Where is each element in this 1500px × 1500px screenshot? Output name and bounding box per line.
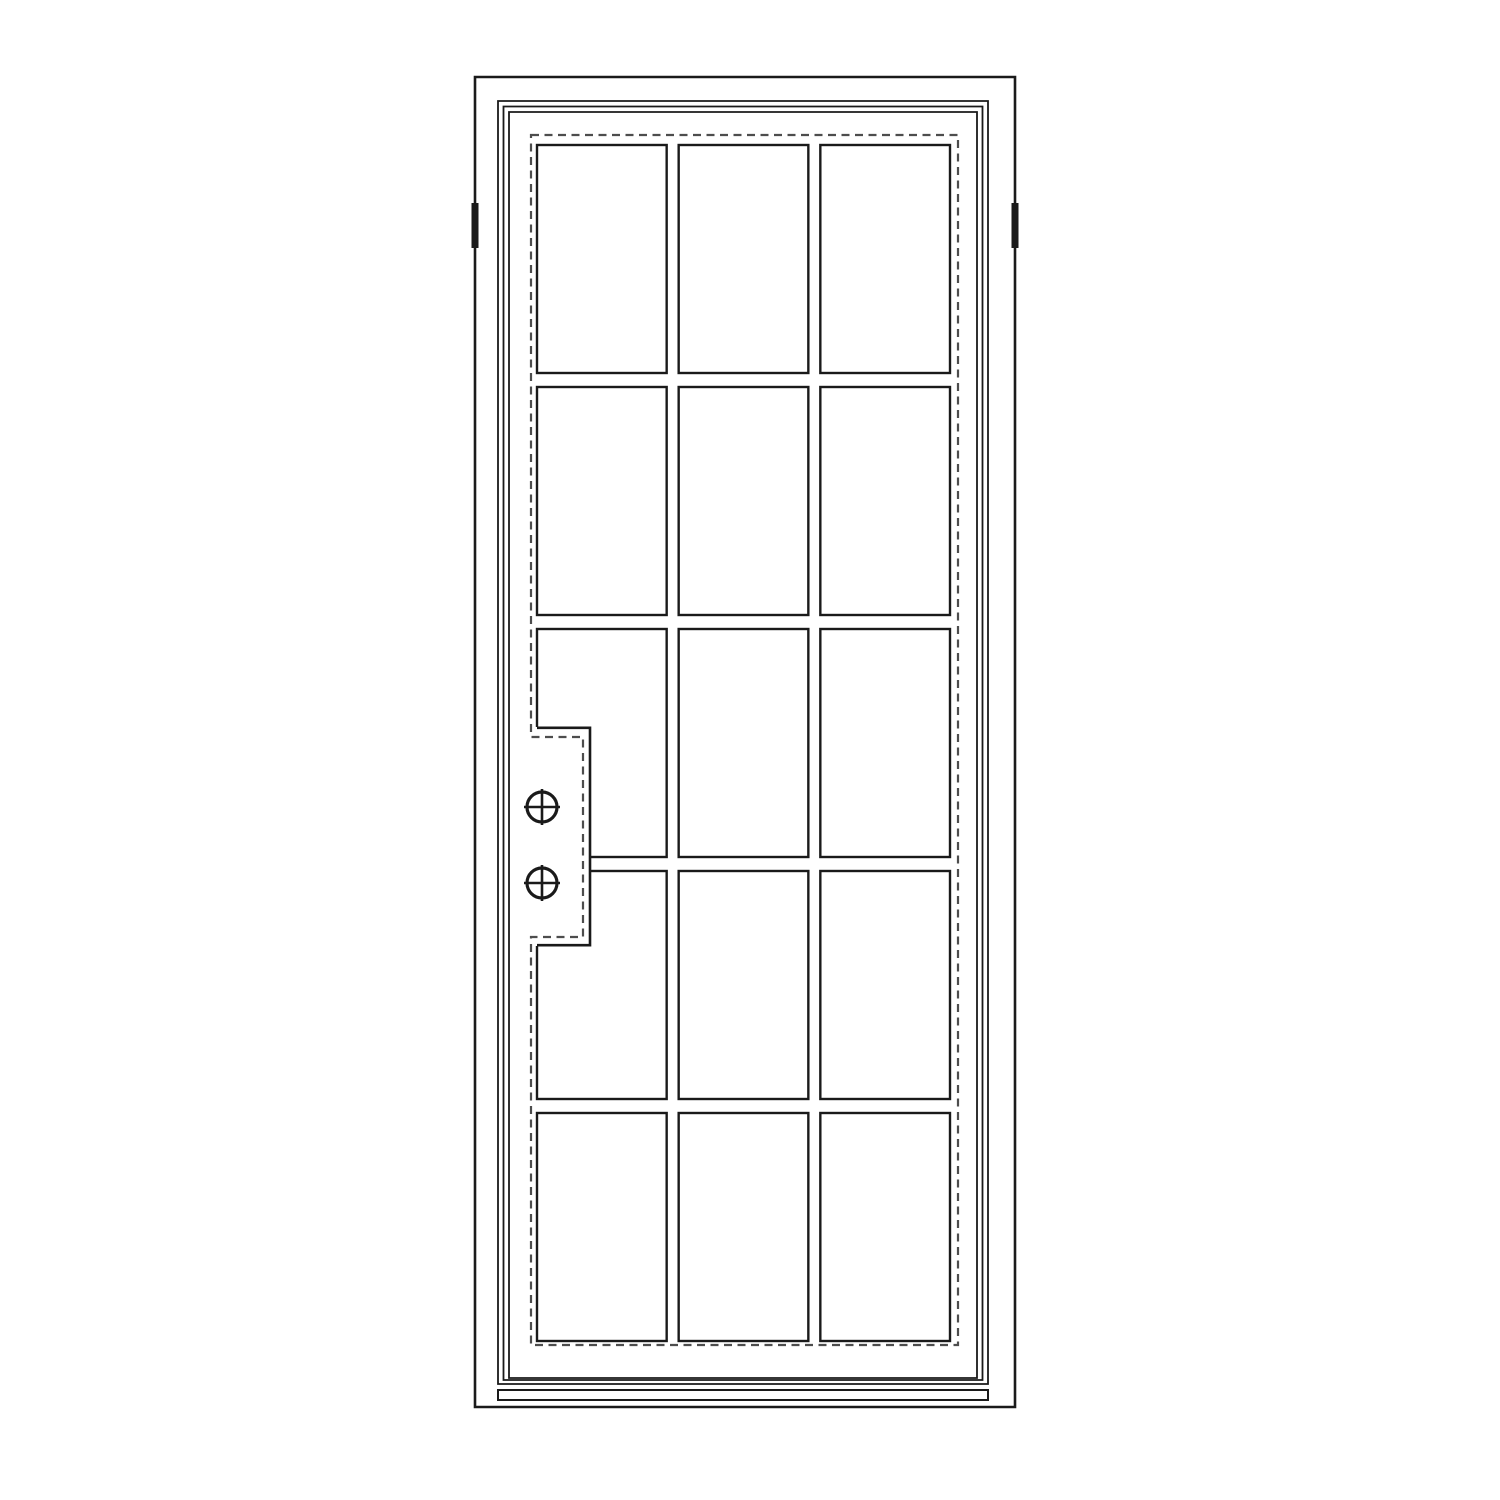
glass-pane-r1-c1 bbox=[537, 145, 667, 373]
door-elevation-drawing bbox=[0, 0, 1500, 1500]
glass-pane-r4-c3 bbox=[820, 871, 950, 1099]
glass-pane-r3-c2 bbox=[679, 629, 809, 857]
page-background bbox=[0, 0, 1500, 1500]
door-sill bbox=[498, 1390, 988, 1400]
glass-pane-r2-c2 bbox=[679, 387, 809, 615]
glass-pane-r5-c3 bbox=[820, 1113, 950, 1341]
glass-pane-r1-c2 bbox=[679, 145, 809, 373]
jamb-mark-right bbox=[1012, 203, 1019, 248]
glass-pane-r2-c1 bbox=[537, 387, 667, 615]
glass-pane-r1-c3 bbox=[820, 145, 950, 373]
lock-box-plate bbox=[510, 727, 590, 946]
glass-pane-r5-c1 bbox=[537, 1113, 667, 1341]
glass-pane-r2-c3 bbox=[820, 387, 950, 615]
jamb-mark-left bbox=[472, 203, 479, 248]
glass-pane-grid bbox=[537, 145, 950, 1341]
glass-pane-r3-c3 bbox=[820, 629, 950, 857]
glass-pane-r4-c2 bbox=[679, 871, 809, 1099]
glazing-gasket-dashed-outline bbox=[531, 135, 958, 1345]
glass-pane-r5-c2 bbox=[679, 1113, 809, 1341]
